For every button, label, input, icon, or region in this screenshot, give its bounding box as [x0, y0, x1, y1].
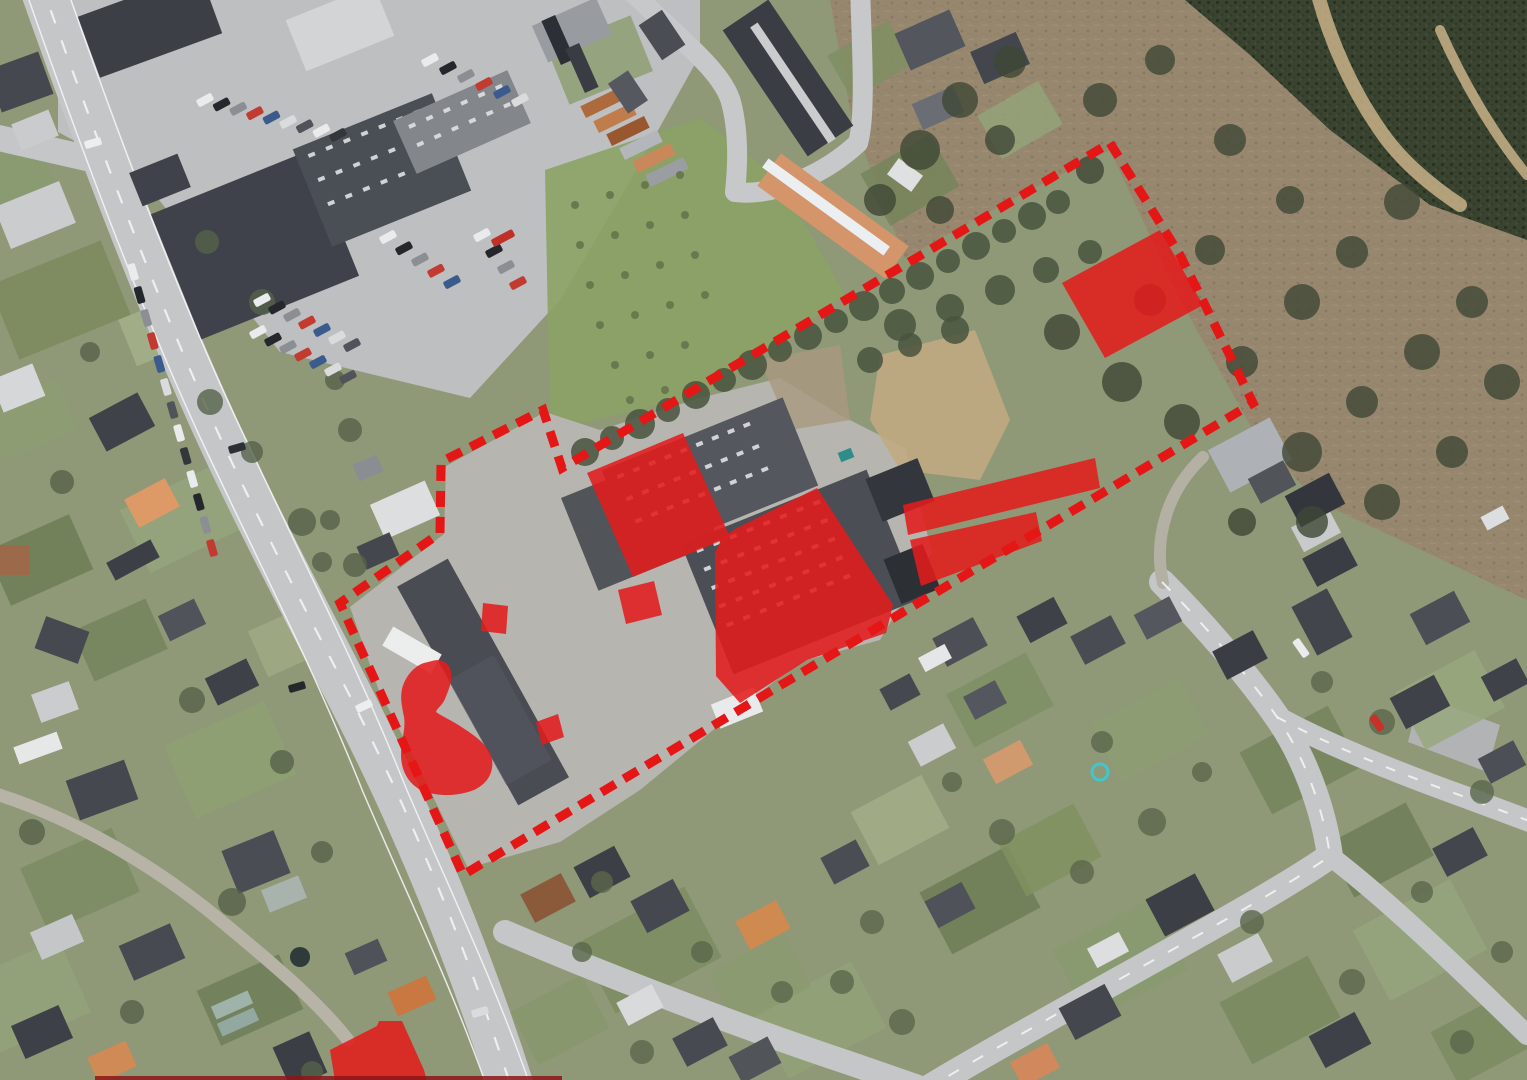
tree — [311, 841, 333, 863]
tree — [1456, 286, 1488, 318]
tree — [630, 1040, 654, 1064]
tree — [19, 819, 45, 845]
tree — [1033, 257, 1059, 283]
aerial-map — [0, 0, 1527, 1080]
house — [0, 545, 30, 575]
tree — [962, 232, 990, 260]
tree — [666, 301, 674, 309]
tree — [992, 219, 1016, 243]
tree — [338, 418, 362, 442]
tree — [989, 819, 1015, 845]
tree — [1384, 184, 1420, 220]
tree — [1404, 334, 1440, 370]
tree — [830, 970, 854, 994]
tree — [1364, 484, 1400, 520]
tree — [691, 251, 699, 259]
tree — [218, 888, 246, 916]
tree — [1282, 432, 1322, 472]
tree — [120, 1000, 144, 1024]
tree — [621, 271, 629, 279]
tree — [1296, 506, 1328, 538]
tree — [1491, 941, 1513, 963]
tree — [898, 333, 922, 357]
tree — [676, 171, 684, 179]
tree — [1450, 1030, 1474, 1054]
tree — [879, 278, 905, 304]
tree — [1078, 240, 1102, 264]
tree — [606, 191, 614, 199]
tree — [681, 341, 689, 349]
tree — [631, 311, 639, 319]
tree — [1436, 436, 1468, 468]
tree — [771, 981, 793, 1003]
tree — [864, 184, 896, 216]
tree — [197, 389, 223, 415]
tree — [985, 125, 1015, 155]
tree — [942, 772, 962, 792]
tree — [936, 249, 960, 273]
tree — [179, 687, 205, 713]
tree — [586, 281, 594, 289]
tree — [860, 910, 884, 934]
tree — [270, 750, 294, 774]
tree — [1145, 45, 1175, 75]
tree — [1192, 762, 1212, 782]
tree — [985, 275, 1015, 305]
tree — [1470, 780, 1494, 804]
tree — [1091, 731, 1113, 753]
tree — [701, 291, 709, 299]
tree — [1284, 284, 1320, 320]
tree — [1339, 969, 1365, 995]
tree — [1484, 364, 1520, 400]
tree — [611, 231, 619, 239]
tree — [50, 470, 74, 494]
tree — [1018, 202, 1046, 230]
tree — [646, 221, 654, 229]
tree — [80, 342, 100, 362]
tree — [343, 553, 367, 577]
tree — [1070, 860, 1094, 884]
tree — [906, 262, 934, 290]
north-street-c — [858, 0, 863, 143]
tree — [857, 347, 883, 373]
tree — [681, 211, 689, 219]
tree — [1411, 881, 1433, 903]
tree — [1346, 386, 1378, 418]
tree — [656, 261, 664, 269]
tree — [1046, 190, 1070, 214]
tree — [1102, 362, 1142, 402]
tree — [942, 82, 978, 118]
tree — [288, 508, 316, 536]
tree — [1044, 314, 1080, 350]
tree — [691, 941, 713, 963]
tree — [646, 351, 654, 359]
tree — [611, 361, 619, 369]
tree — [320, 510, 340, 530]
tree — [591, 871, 613, 893]
tree — [1276, 186, 1304, 214]
tree — [195, 230, 219, 254]
tree — [941, 316, 969, 344]
tree — [312, 552, 332, 572]
tree — [1336, 236, 1368, 268]
tree — [926, 196, 954, 224]
tree — [1083, 83, 1117, 117]
tree — [1138, 808, 1166, 836]
red-area-store-roof-square — [481, 603, 508, 634]
tree — [1240, 910, 1264, 934]
tree — [572, 942, 592, 962]
trampoline — [290, 947, 310, 967]
tree — [1076, 156, 1104, 184]
tree — [1164, 404, 1200, 440]
tree — [661, 386, 669, 394]
tree — [641, 181, 649, 189]
tree — [1311, 671, 1333, 693]
tree — [576, 241, 584, 249]
tree — [1228, 508, 1256, 536]
tree — [900, 130, 940, 170]
tree — [596, 321, 604, 329]
tree — [889, 1009, 915, 1035]
tree — [571, 201, 579, 209]
tree — [1214, 124, 1246, 156]
tree — [626, 396, 634, 404]
map-canvas — [0, 0, 1527, 1080]
tree — [1195, 235, 1225, 265]
tree — [994, 46, 1026, 78]
